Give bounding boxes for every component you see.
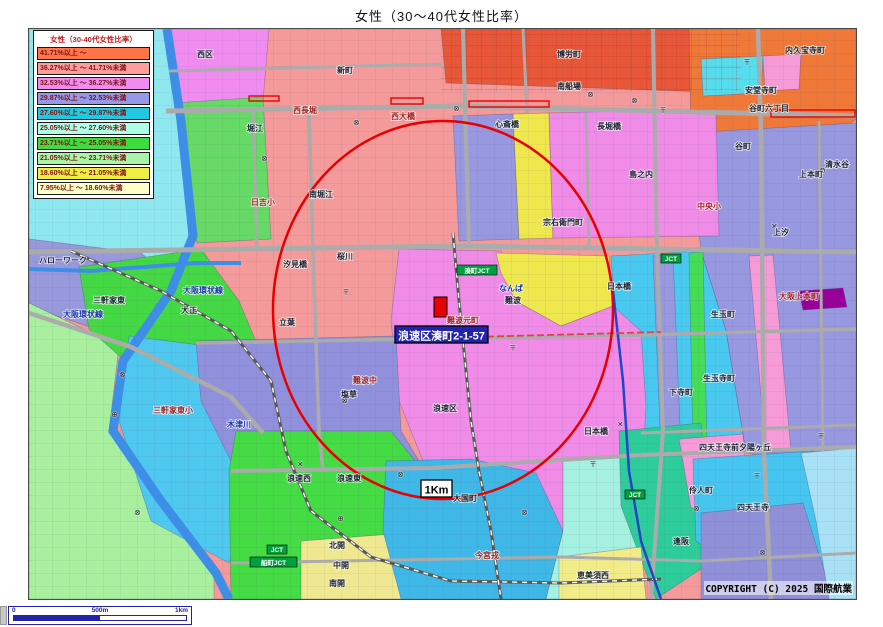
page-title: 女性（30〜40代女性比率） bbox=[28, 6, 855, 25]
map-label: 谷町六丁目 bbox=[748, 103, 789, 113]
jct-badge-label: 船町JCT bbox=[261, 558, 286, 567]
map-label: 生玉寺町 bbox=[703, 373, 735, 383]
jct-badge-label: 湊町JCT bbox=[464, 266, 489, 275]
map-label: 大阪環状線 bbox=[183, 285, 223, 295]
map-symbol: 〒 bbox=[817, 432, 825, 441]
map-label: 恵美須西 bbox=[577, 570, 609, 580]
map-label: 内久宝寺町 bbox=[785, 45, 825, 55]
map-symbol: 〒 bbox=[509, 344, 517, 353]
map-symbol: ⊗ bbox=[453, 104, 460, 113]
map-label: 三軒家東小 bbox=[153, 405, 193, 415]
map-symbol: ⊗ bbox=[631, 96, 638, 105]
map-symbol: ⊗ bbox=[521, 508, 528, 517]
map-label: 今宮戎 bbox=[474, 550, 499, 560]
map-symbol: 〒 bbox=[753, 472, 761, 481]
map-symbol: 〒 bbox=[743, 58, 751, 67]
map-label: 宗右衛門町 bbox=[543, 217, 583, 227]
map-label: 堀江 bbox=[247, 123, 263, 133]
address-badge-label: 浪速区湊町2-1-57 bbox=[398, 328, 485, 342]
map-label: 安堂寺町 bbox=[745, 85, 777, 95]
map-label: 西大橋 bbox=[391, 111, 416, 121]
map-label: 難波 bbox=[505, 295, 522, 305]
map-label: 大正 bbox=[181, 305, 197, 315]
map-label: 下寺町 bbox=[669, 387, 693, 397]
map-label: 島之内 bbox=[629, 169, 653, 179]
map-symbol: ⊗ bbox=[134, 508, 141, 517]
map-label: 日本橋 bbox=[584, 426, 609, 436]
map-label: 日本橋 bbox=[607, 281, 632, 291]
scale-bar: 0 500m 1km bbox=[8, 606, 192, 625]
map-label: 北開 bbox=[329, 540, 345, 550]
map-label: 上汐 bbox=[773, 227, 789, 237]
map-label: 南船場 bbox=[557, 81, 581, 91]
map-label: 中開 bbox=[333, 560, 349, 570]
map-label: なんば bbox=[499, 283, 523, 293]
map-label: 心斎橋 bbox=[495, 119, 520, 129]
map-label: 浪速西 bbox=[287, 473, 311, 483]
copyright-notice: COPYRIGHT (C) 2025 国際航業 bbox=[704, 581, 853, 595]
map-label: 大阪上本町 bbox=[779, 291, 819, 301]
map-label: 西区 bbox=[197, 50, 213, 59]
map-label: 桜川 bbox=[337, 251, 353, 261]
map-label: 日吉小 bbox=[251, 197, 275, 207]
map-label: 立葉 bbox=[279, 317, 296, 327]
map-label: 四天王寺前夕陽ヶ丘 bbox=[699, 442, 771, 452]
window-edge bbox=[0, 606, 7, 625]
map-label: 大阪環状線 bbox=[63, 309, 103, 319]
map-symbol: ⊗ bbox=[397, 470, 404, 479]
map-symbol: ⊗ bbox=[119, 370, 126, 379]
map-label: 四天王寺 bbox=[737, 502, 769, 512]
map-label: 浪速東 bbox=[337, 473, 361, 483]
km-badge-label: 1Km bbox=[425, 484, 449, 496]
legend-item: 25.05%以上 ～ 27.60%未満 bbox=[37, 122, 150, 135]
jct-badge-label: JCT bbox=[665, 256, 677, 263]
map-symbol: ✕ bbox=[617, 420, 624, 429]
legend-panel: 女性（30-40代女性比率） 41.71%以上 ～36.27%以上 ～ 41.7… bbox=[33, 30, 154, 199]
map-label: 生玉町 bbox=[711, 309, 735, 319]
map-label: 大国町 bbox=[453, 493, 477, 503]
legend-item: 7.95%以上 ～ 18.60%未満 bbox=[37, 182, 150, 195]
scale-500m-label: 500m bbox=[92, 607, 109, 614]
legend-item: 21.05%以上 ～ 23.71%未満 bbox=[37, 152, 150, 165]
map-label: 汐見橋 bbox=[283, 259, 308, 269]
target-marker bbox=[434, 297, 447, 317]
map-symbol: 〒 bbox=[659, 106, 667, 115]
map-label: 西長堀 bbox=[293, 105, 317, 115]
scale-bar-track bbox=[13, 615, 187, 621]
legend-item: 36.27%以上 ～ 41.71%未満 bbox=[37, 62, 150, 75]
scale-bar-fill bbox=[14, 616, 100, 620]
map-label: 上本町 bbox=[799, 169, 823, 179]
map-symbol: ⊗ bbox=[261, 154, 268, 163]
map-symbol: ⊗ bbox=[759, 548, 766, 557]
map-symbol: ⊗ bbox=[587, 90, 594, 99]
map-symbol: ⊕ bbox=[111, 410, 118, 419]
legend-title: 女性（30-40代女性比率） bbox=[37, 34, 150, 45]
map-symbol: 〒 bbox=[589, 460, 597, 469]
scale-1km-label: 1km bbox=[175, 607, 188, 614]
legend-item: 27.60%以上 ～ 29.87%未満 bbox=[37, 107, 150, 120]
map-label: 三軒家東 bbox=[93, 295, 125, 305]
map-label: 中央小 bbox=[697, 201, 721, 211]
gis-application-window: { "title": "女性（30〜40代女性比率）", "legend": {… bbox=[0, 0, 883, 627]
map-symbol: ⊗ bbox=[353, 118, 360, 127]
map-symbol: ⊕ bbox=[337, 514, 344, 523]
scale-zero-label: 0 bbox=[12, 607, 16, 614]
legend-item: 41.71%以上 ～ bbox=[37, 47, 150, 60]
map-label: ハローワーク bbox=[39, 255, 87, 265]
map-label: 難波元町 bbox=[447, 315, 479, 325]
street-grid-red bbox=[441, 29, 741, 91]
legend-item: 29.87%以上 ～ 32.53%未満 bbox=[37, 92, 150, 105]
map-label: 木津川 bbox=[226, 419, 251, 429]
map-symbol: 〒 bbox=[342, 288, 350, 297]
legend-item: 18.60%以上 ～ 21.05%未満 bbox=[37, 167, 150, 180]
map-label: 博労町 bbox=[557, 49, 581, 59]
map-label: 谷町 bbox=[734, 141, 751, 151]
map-label: 塩草 bbox=[341, 389, 357, 399]
map-label: 新町 bbox=[337, 65, 353, 75]
map-label: 長堀橋 bbox=[597, 121, 622, 131]
legend-item: 23.71%以上 ～ 25.05%未満 bbox=[37, 137, 150, 150]
map-label: 南堀江 bbox=[309, 189, 333, 199]
map-label: 伶人町 bbox=[688, 485, 713, 495]
map-label: 清水谷 bbox=[825, 159, 850, 169]
legend-item: 32.53%以上 ～ 36.27%未満 bbox=[37, 77, 150, 90]
jct-badge-label: JCT bbox=[271, 547, 283, 554]
map-label: 難波中 bbox=[353, 375, 377, 385]
map-label: 南開 bbox=[329, 578, 345, 588]
map-label: 浪速区 bbox=[433, 403, 457, 413]
map-label: 逢阪 bbox=[673, 536, 690, 546]
map-symbol: ⊗ bbox=[693, 504, 700, 513]
map-symbol: ✕ bbox=[297, 460, 304, 469]
jct-badge-label: JCT bbox=[629, 492, 641, 499]
